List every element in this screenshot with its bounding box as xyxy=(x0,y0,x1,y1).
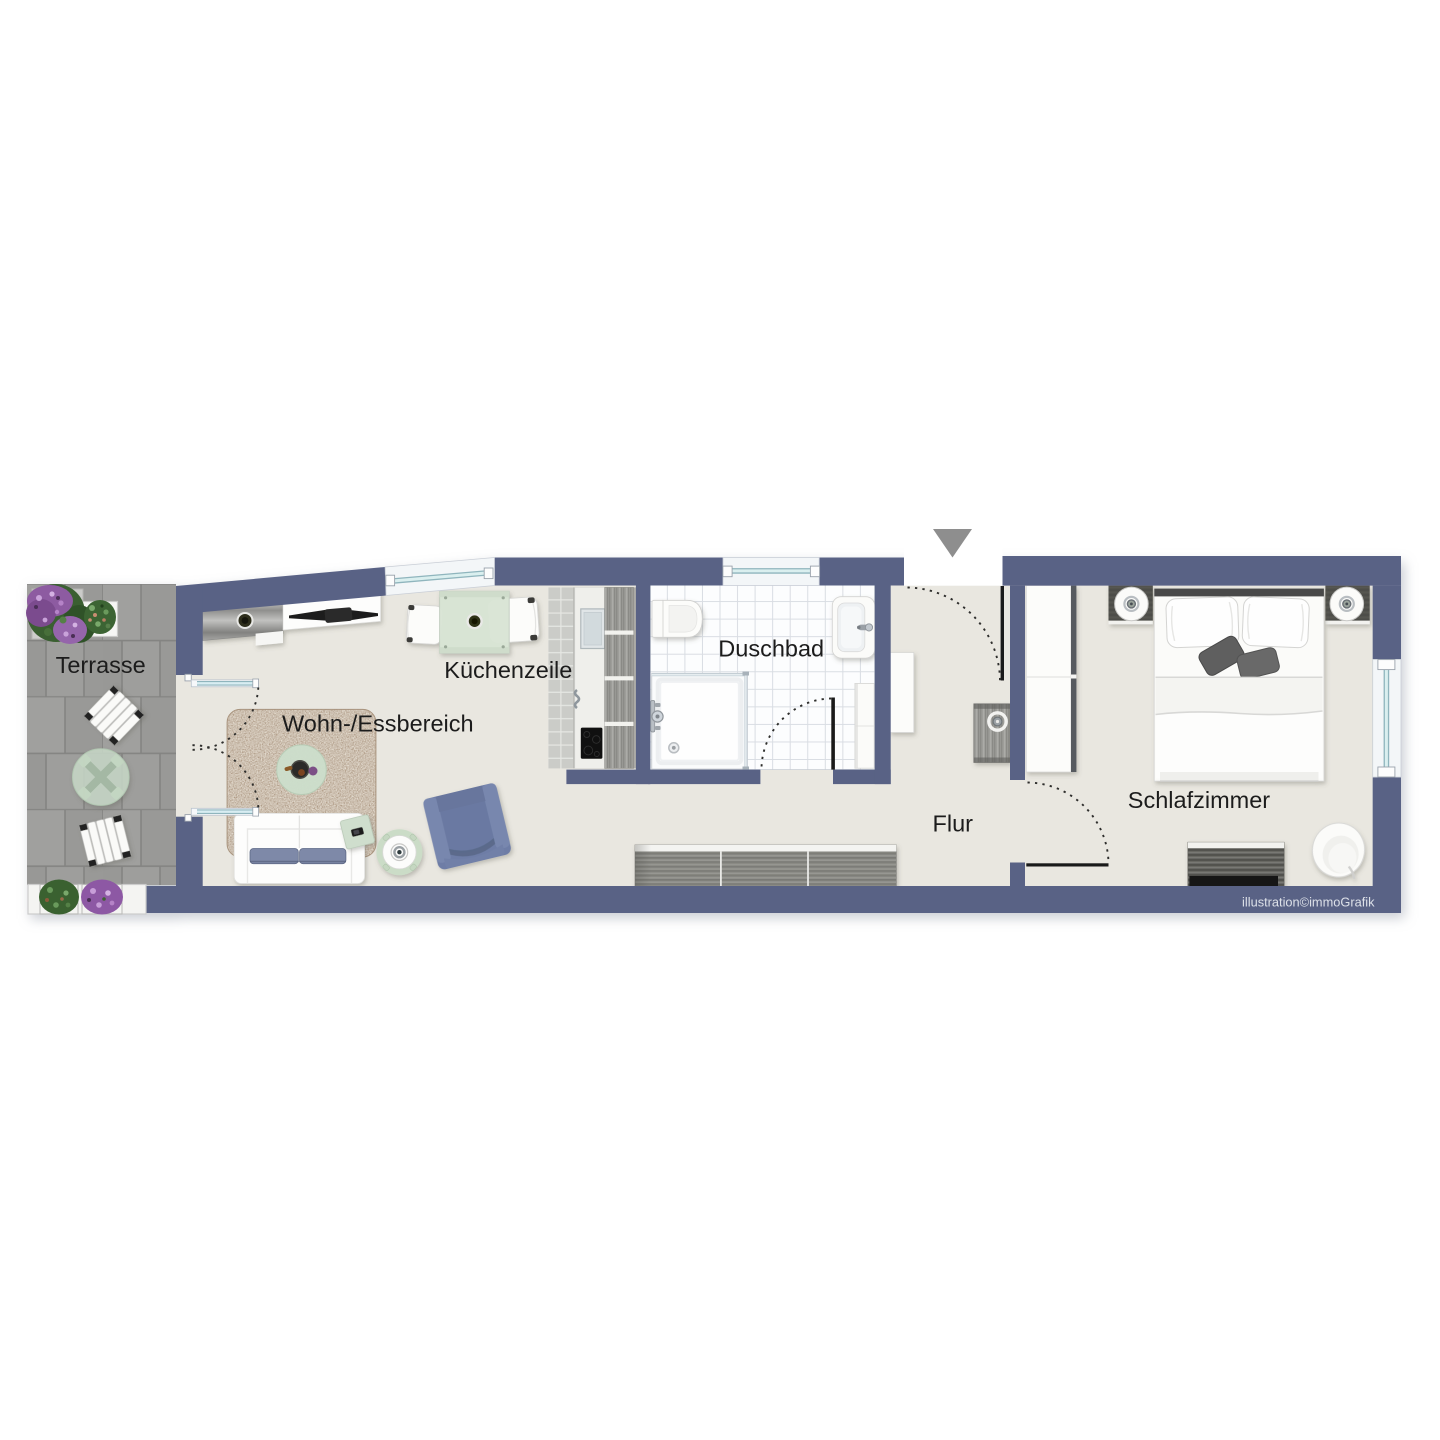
svg-text:Duschbad: Duschbad xyxy=(718,636,824,662)
svg-text:Flur: Flur xyxy=(933,810,974,836)
svg-text:illustration©immoGrafik: illustration©immoGrafik xyxy=(1242,895,1375,910)
svg-text:Terrasse: Terrasse xyxy=(56,652,146,678)
svg-text:Schlafzimmer: Schlafzimmer xyxy=(1128,787,1271,813)
svg-text:Küchenzeile: Küchenzeile xyxy=(444,657,572,683)
svg-text:Wohn-/Essbereich: Wohn-/Essbereich xyxy=(282,711,474,737)
